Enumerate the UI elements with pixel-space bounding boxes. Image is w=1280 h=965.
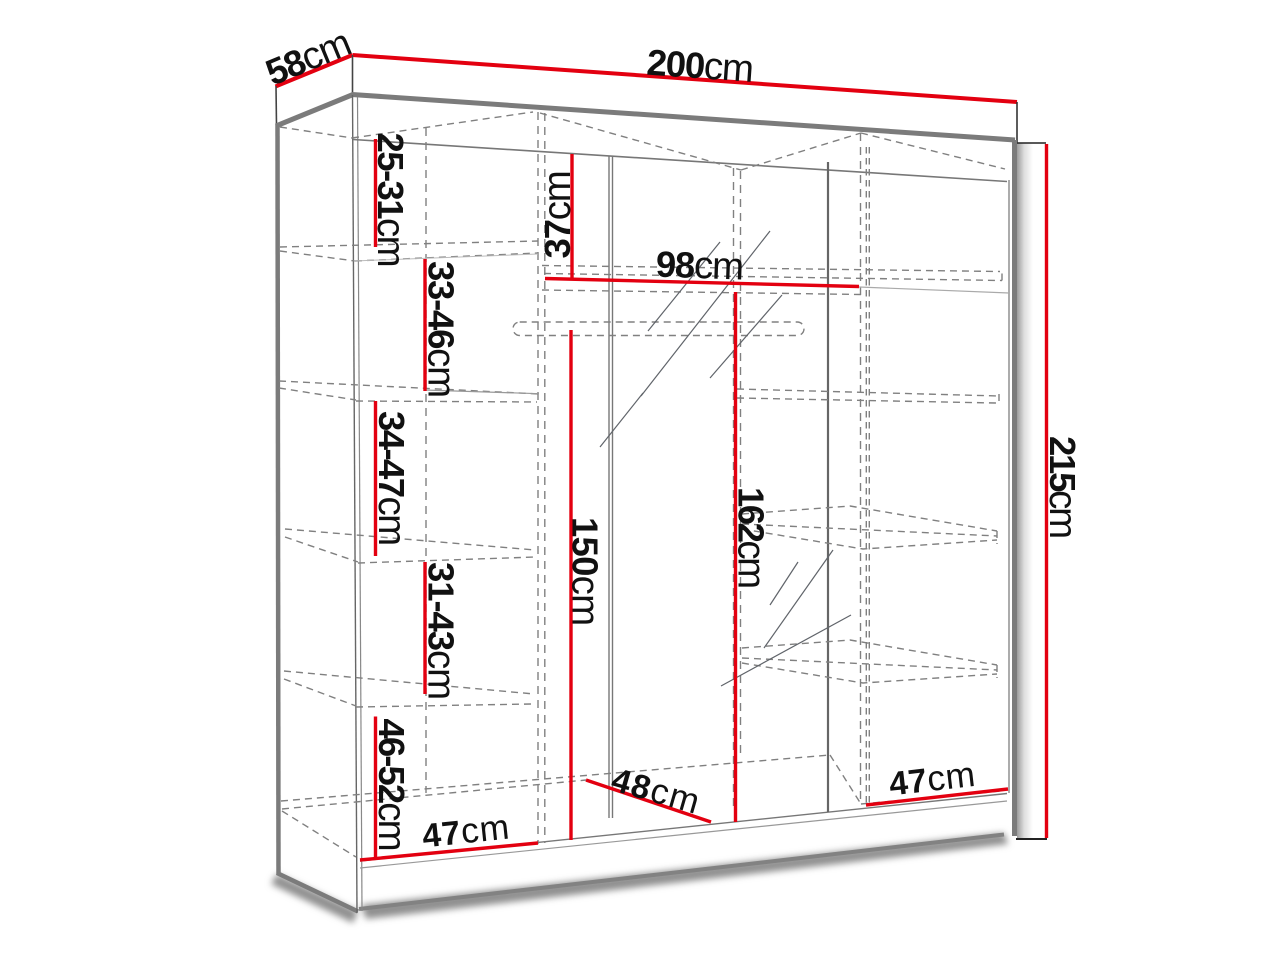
- svg-text:25-31cm: 25-31cm: [369, 133, 412, 267]
- svg-text:162cm: 162cm: [730, 487, 773, 588]
- svg-text:34-47cm: 34-47cm: [370, 411, 413, 545]
- svg-text:33-46cm: 33-46cm: [420, 261, 463, 397]
- svg-text:200cm: 200cm: [645, 41, 754, 91]
- svg-text:31-43cm: 31-43cm: [420, 562, 463, 699]
- svg-text:46-52cm: 46-52cm: [370, 719, 413, 851]
- svg-text:215cm: 215cm: [1041, 436, 1084, 538]
- svg-text:98cm: 98cm: [655, 243, 743, 289]
- svg-text:150cm: 150cm: [564, 517, 607, 625]
- svg-text:37cm: 37cm: [536, 171, 579, 258]
